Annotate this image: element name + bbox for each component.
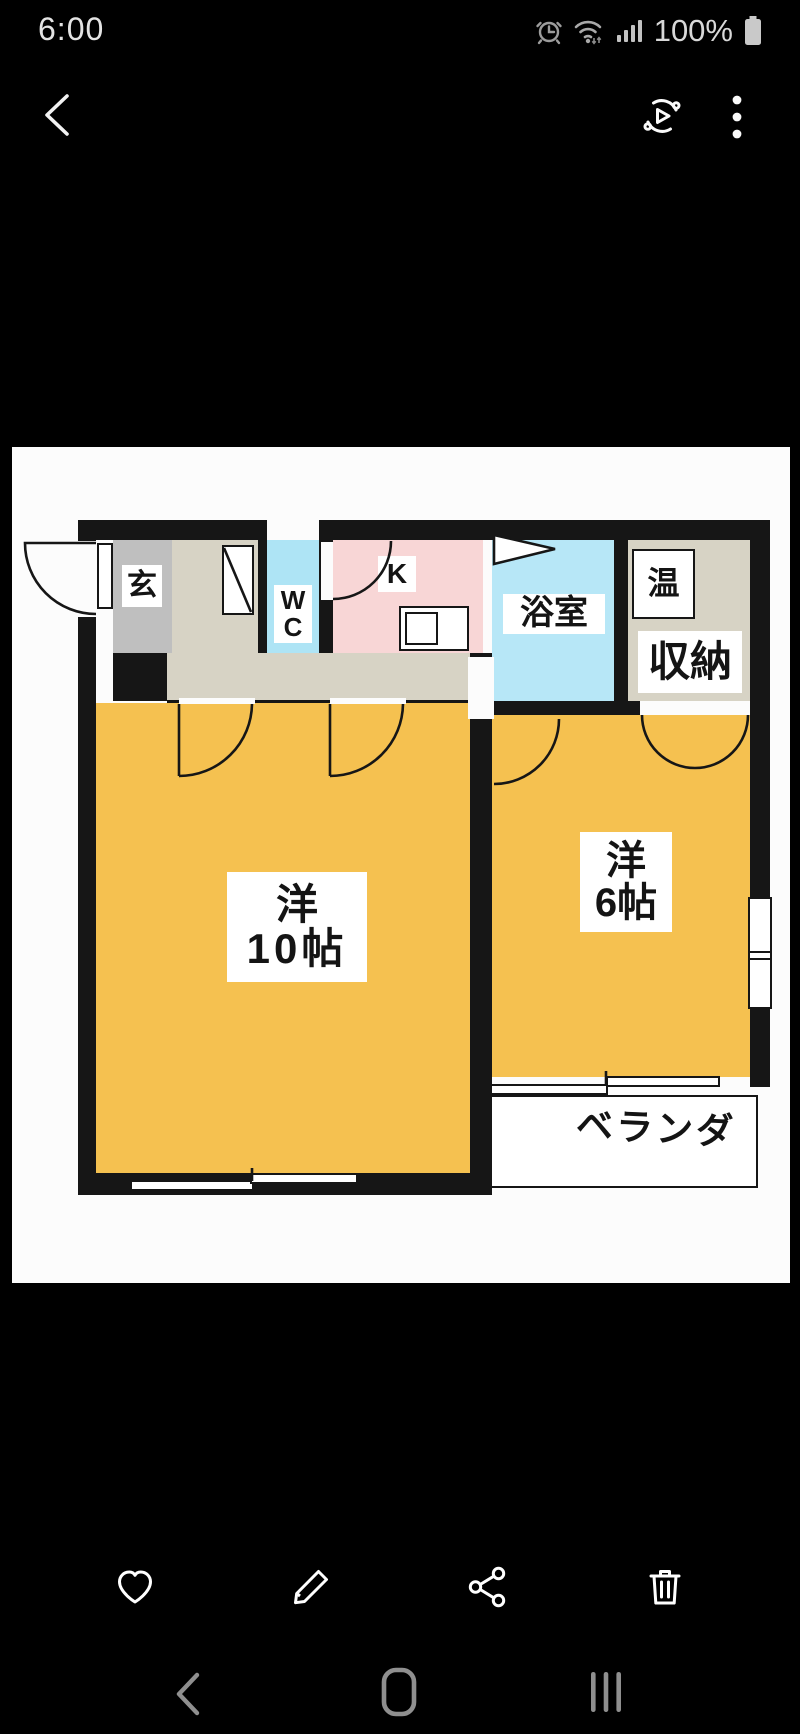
app-bar <box>0 75 800 159</box>
clock-time: 6:00 <box>38 11 104 48</box>
share-icon <box>466 1564 512 1610</box>
kitchen-door-opening <box>321 542 333 600</box>
right-wall-window <box>748 897 772 1009</box>
heart-icon <box>112 1564 158 1610</box>
nav-home-button[interactable] <box>381 1667 417 1720</box>
wall-below-genkan <box>113 653 167 701</box>
closet-box <box>222 545 254 615</box>
storage-door-opening <box>640 701 750 715</box>
more-options-button[interactable] <box>725 93 749 144</box>
nav-recents-button[interactable] <box>590 1670 622 1717</box>
motion-photo-icon <box>641 95 683 137</box>
pencil-icon <box>288 1564 334 1610</box>
wall-hall-wc <box>258 540 267 653</box>
motion-photo-button[interactable] <box>641 95 683 140</box>
kitchen-sink-basin <box>405 612 438 645</box>
delete-button[interactable] <box>642 1564 688 1613</box>
room6-door-opening <box>468 657 494 719</box>
wc-window <box>265 520 321 540</box>
recents-icon <box>590 1670 622 1714</box>
wall-top <box>78 520 770 540</box>
edit-button[interactable] <box>288 1564 334 1613</box>
battery-icon <box>744 16 762 46</box>
wall-bath-storage <box>614 520 628 713</box>
nav-back-button[interactable] <box>172 1670 206 1721</box>
water-heater-label: 温 <box>632 549 695 619</box>
favorite-button[interactable] <box>112 1564 158 1613</box>
action-bar <box>0 1558 800 1624</box>
room10-window-rail <box>130 1180 254 1191</box>
wall-divider <box>470 653 492 1195</box>
entrance-door-leaf <box>97 543 113 609</box>
kitchen-sink-counter <box>399 606 469 651</box>
wifi-icon <box>574 16 606 46</box>
veranda-label: ベランダ <box>559 1099 753 1159</box>
entrance-opening <box>76 541 98 617</box>
kitchen-label: K <box>378 556 416 592</box>
western-room-6-label: 洋 6帖 <box>580 832 672 932</box>
room6-window-rail <box>606 1076 720 1087</box>
photo-view[interactable]: 玄 W C K 浴室 温 収納 洋 10帖 洋 6帖 ベランダ <box>12 447 790 1283</box>
more-options-icon <box>725 93 749 141</box>
home-icon <box>381 1667 417 1717</box>
genkan-label: 玄 <box>122 565 162 607</box>
hallway-corridor <box>167 653 470 703</box>
status-icons: 100% <box>535 13 762 49</box>
back-icon <box>172 1670 206 1718</box>
phone-screen: 6:00 <box>0 0 800 1734</box>
cellular-signal-icon <box>617 17 643 45</box>
battery-percent: 100% <box>654 13 733 49</box>
window-mullion <box>750 958 770 960</box>
back-icon <box>40 91 78 139</box>
corridor-door-opening-2 <box>330 698 406 704</box>
alarm-icon <box>535 16 563 46</box>
western-room-10-label: 洋 10帖 <box>227 872 367 982</box>
trash-icon <box>642 1564 688 1610</box>
status-bar: 6:00 <box>0 0 800 62</box>
wc-label: W C <box>274 585 312 643</box>
share-button[interactable] <box>466 1564 512 1613</box>
window-mullion <box>750 951 770 953</box>
navigation-bar <box>0 1658 800 1734</box>
wall-left <box>78 540 96 1195</box>
room6-window-rail <box>490 1084 608 1095</box>
bathroom-label: 浴室 <box>503 594 605 634</box>
corridor-door-opening-1 <box>179 698 255 704</box>
room10-window-rail <box>250 1173 358 1184</box>
back-button[interactable] <box>40 91 78 142</box>
storage-label: 収納 <box>638 631 742 693</box>
